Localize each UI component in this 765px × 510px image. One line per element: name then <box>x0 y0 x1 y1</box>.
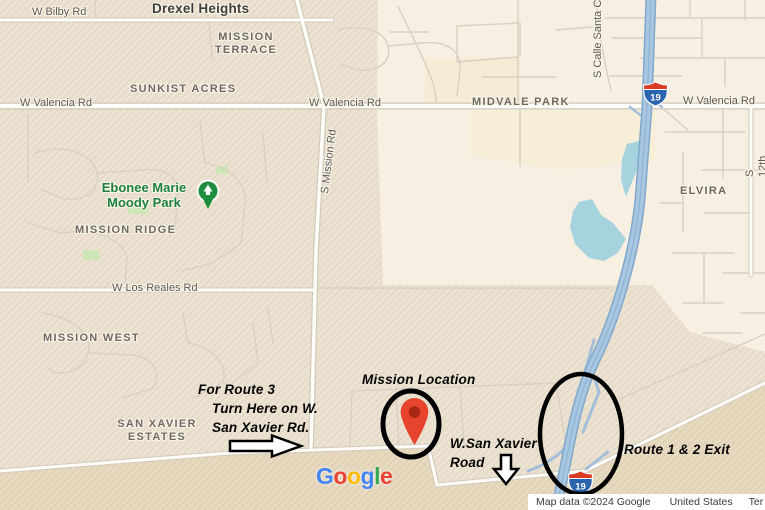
poi-label-moody-park[interactable]: Ebonee Marie Moody Park <box>98 180 190 211</box>
road-label-valencia-mid: W Valencia Rd <box>309 97 381 110</box>
country-link[interactable]: United States <box>670 496 733 508</box>
annotation-route-1-2-exit: Route 1 & 2 Exit <box>624 442 730 458</box>
road-label-valencia-left: W Valencia Rd <box>20 97 92 110</box>
google-logo-letter: e <box>380 463 392 489</box>
area-label-mission-ridge: MISSION RIDGE <box>75 224 176 237</box>
annotation-san-xavier-line1: W.San Xavier <box>450 436 537 452</box>
map-screenshot: 19 19 W Bilby Rd Drexel Heights MISSION … <box>0 0 765 510</box>
road-label-12th-ave: S 12th Ave <box>744 156 765 177</box>
map-data-attribution: Map data ©2024 Google <box>536 496 651 508</box>
google-logo-letter: g <box>361 463 375 489</box>
annotation-route3-line3: San Xavier Rd. <box>212 420 309 436</box>
annotation-route3-line1: For Route 3 <box>198 382 275 398</box>
terms-link[interactable]: Ter <box>749 496 764 508</box>
area-label-mission-terrace: MISSION TERRACE <box>205 31 287 57</box>
area-label-mission-west: MISSION WEST <box>43 332 140 345</box>
road-label-valencia-right: W Valencia Rd <box>683 95 755 108</box>
google-logo-letter: G <box>316 463 333 489</box>
annotation-mission-location: Mission Location <box>362 372 475 388</box>
city-label-drexel-heights: Drexel Heights <box>152 1 249 17</box>
shield-number: 19 <box>650 93 661 104</box>
google-logo[interactable]: Google <box>316 463 392 490</box>
area-label-sunkist-acres: SUNKIST ACRES <box>130 83 236 96</box>
google-logo-letter: o <box>347 463 361 489</box>
area-label-midvale-park: MIDVALE PARK <box>472 96 570 109</box>
area-label-elvira: ELVIRA <box>680 185 727 198</box>
road-label-los-reales: W Los Reales Rd <box>112 282 198 295</box>
annotation-route3-line2: Turn Here on W. <box>212 401 318 417</box>
annotation-san-xavier-line2: Road <box>450 455 485 471</box>
shield-number: 19 <box>575 482 586 493</box>
road-label-calle-santa: S Calle Santa C <box>592 0 605 78</box>
area-label-san-xavier-estates: SAN XAVIER ESTATES <box>106 418 208 444</box>
road-label-bilby: W Bilby Rd <box>32 6 86 19</box>
google-logo-letter: o <box>333 463 347 489</box>
attribution-bar: Map data ©2024 Google United States Ter <box>528 494 765 510</box>
